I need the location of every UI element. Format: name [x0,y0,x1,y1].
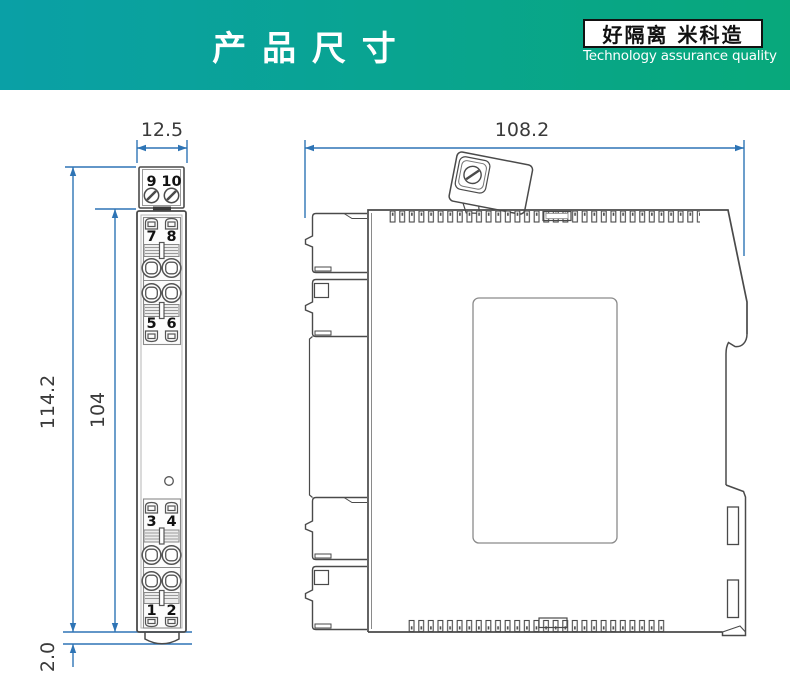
screw-slot-row [144,528,179,544]
terminal-block-9-10: 9 10 [139,167,184,211]
screw-terminal-icon [144,188,178,202]
bottom-foot [145,632,179,644]
dim-front-foot: 2.0 [37,632,192,672]
terminal-number: 3 [146,514,156,530]
terminal-number: 1 [146,603,156,619]
terminal-number: 8 [166,229,176,245]
terminal-section-lower: 3 4 [142,499,181,628]
page-title: 产 品 尺 寸 [0,0,610,90]
side-terminal-profiles [306,214,368,630]
dimension-label-foot: 2.0 [37,642,59,672]
label-area [473,298,617,543]
terminal-number: 5 [146,316,156,332]
header-banner: 产 品 尺 寸 好隔离 米科造 Technology assurance qua… [0,0,790,90]
terminal-number: 7 [146,229,156,245]
dimension-label-front-width: 12.5 [141,119,183,141]
dimension-label-body-height: 104 [87,392,109,428]
terminal-number: 2 [166,603,176,619]
brand-badge: 好隔离 米科造 [583,19,763,48]
terminal-number: 4 [166,514,176,530]
dimension-label-side-width: 108.2 [495,119,549,141]
page: 产 品 尺 寸 好隔离 米科造 Technology assurance qua… [0,0,790,700]
terminal-section-upper: 7 8 [142,218,181,345]
din-rail-clip [723,334,748,636]
terminal-number: 6 [166,316,176,332]
screw-slot-row [144,243,179,259]
dim-front-body-height: 104 [87,209,136,632]
dimension-label-total-height: 114.2 [37,375,59,429]
side-view: 108.2 [305,119,747,636]
dim-front-width: 12.5 [137,119,187,163]
front-view: 12.5 114.2 104 [37,119,192,672]
brand-badge-subtitle: Technology assurance quality [583,48,783,64]
dim-side-width: 108.2 [305,119,744,256]
dimension-drawing: 12.5 114.2 104 [0,90,790,700]
led-hole [165,477,174,486]
